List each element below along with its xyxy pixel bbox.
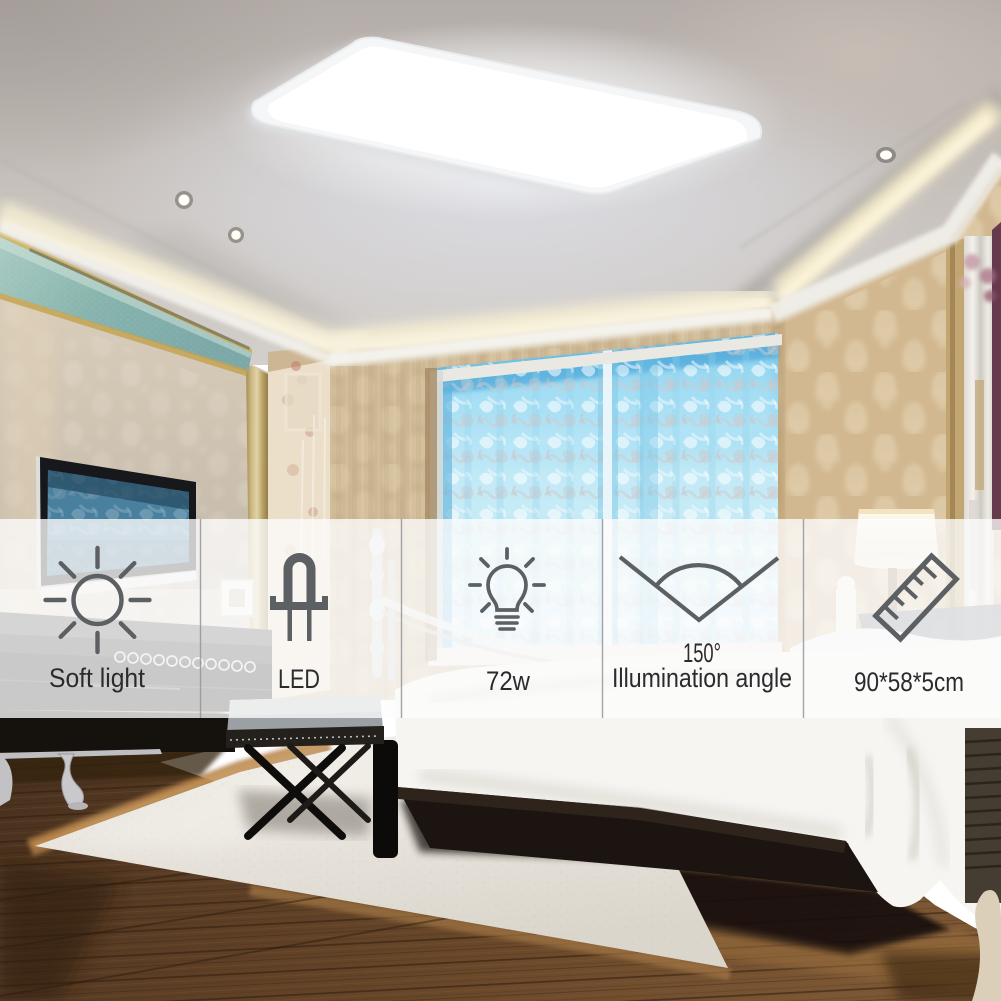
svg-text:LED: LED xyxy=(278,664,320,694)
svg-text:90*58*5cm: 90*58*5cm xyxy=(854,667,964,697)
svg-text:Illumination angle: Illumination angle xyxy=(612,663,792,693)
svg-text:Soft light: Soft light xyxy=(49,663,145,693)
svg-text:72w: 72w xyxy=(486,666,530,696)
